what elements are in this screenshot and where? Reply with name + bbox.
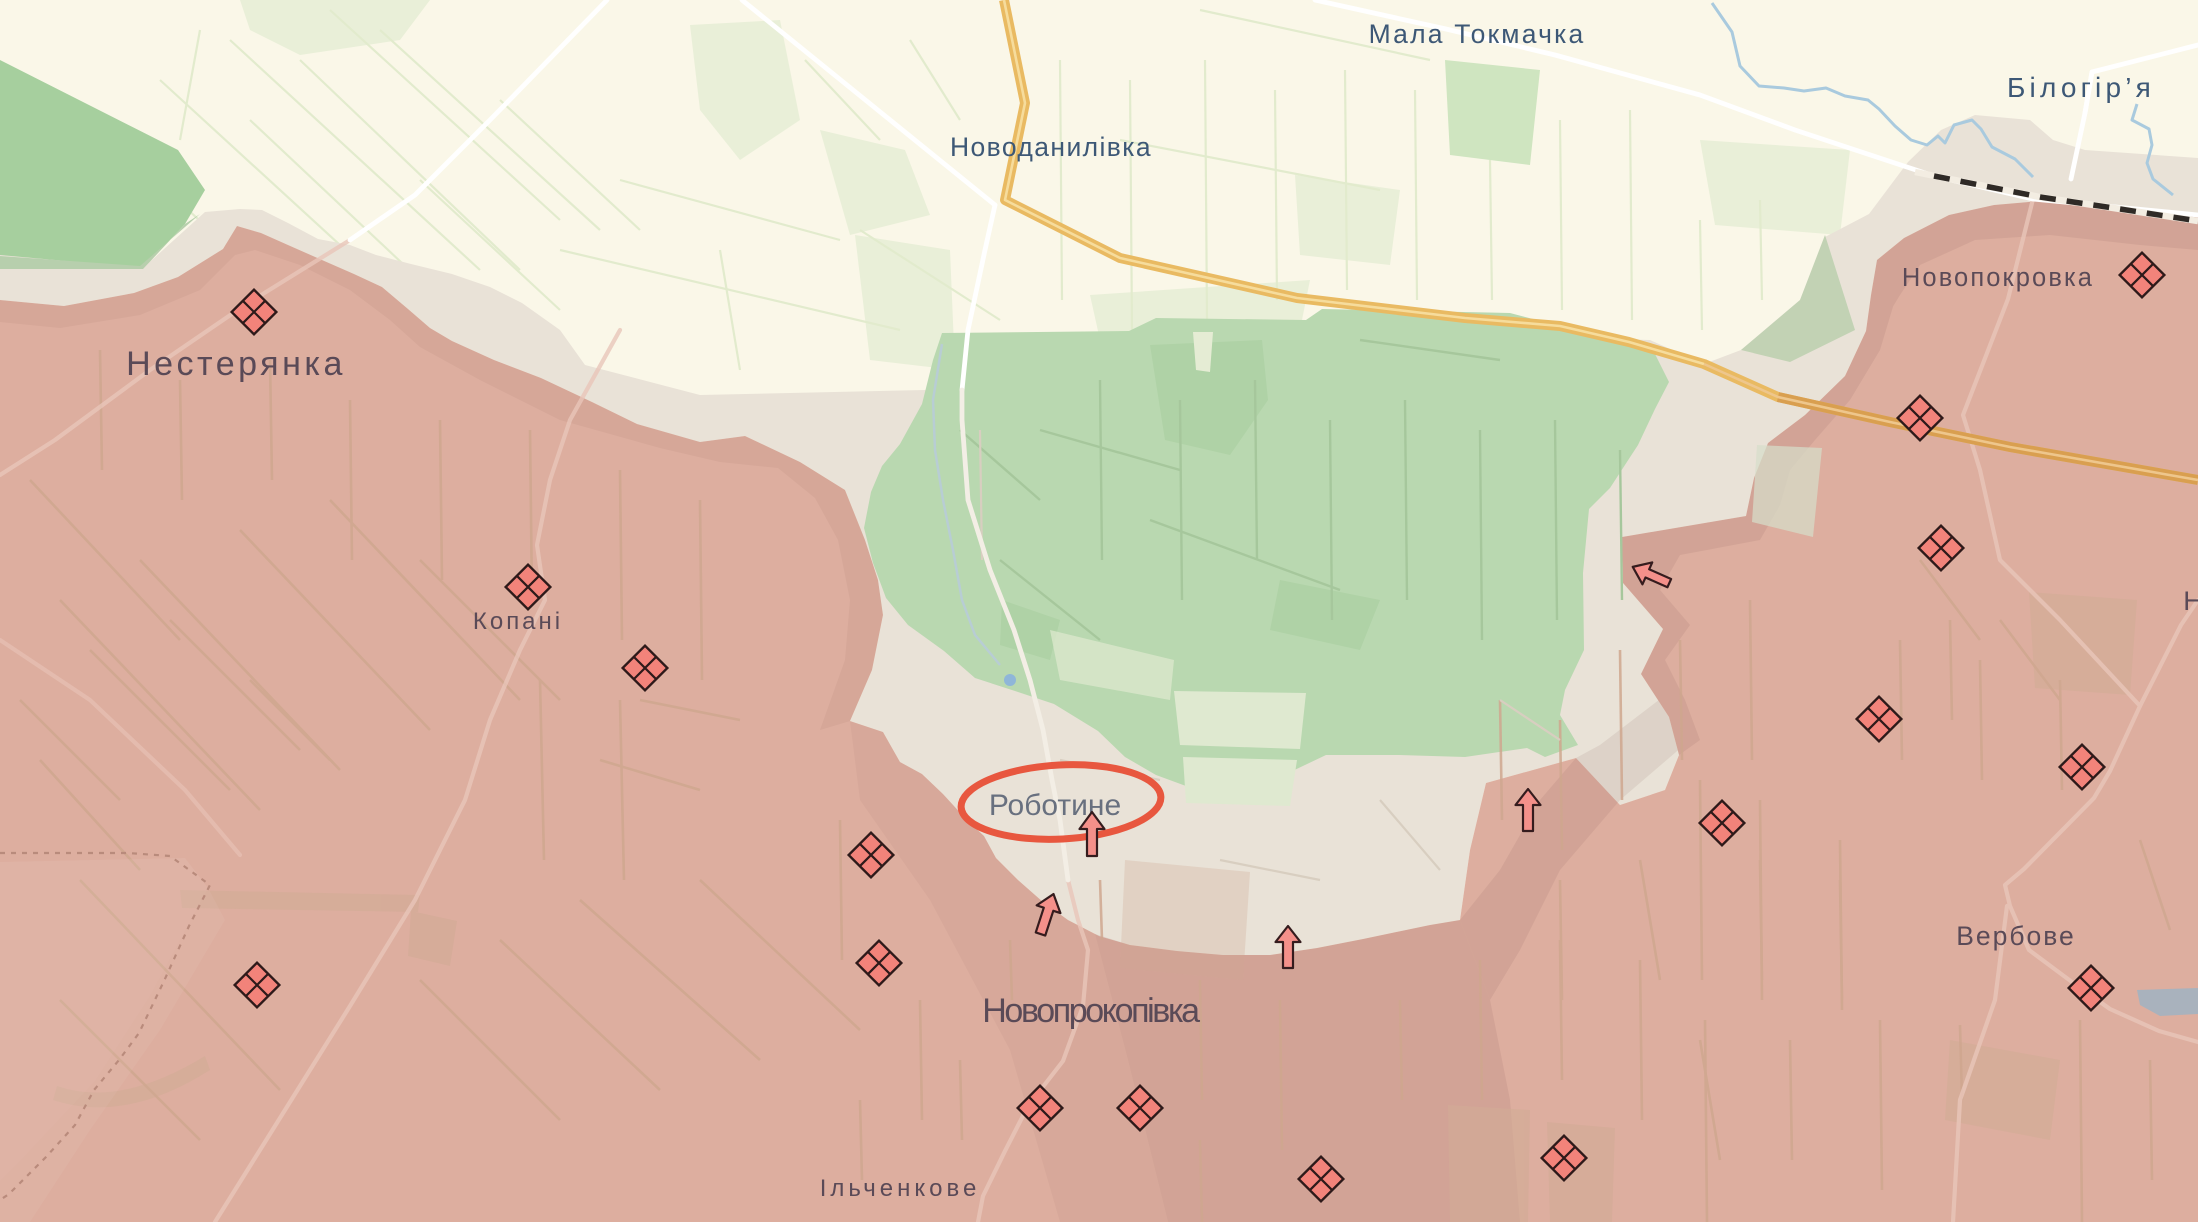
svg-text:Новоданилівка: Новоданилівка: [950, 132, 1152, 162]
svg-text:Вербове: Вербове: [1956, 921, 2076, 951]
svg-text:Нестерянка: Нестерянка: [126, 345, 346, 383]
svg-text:Новопокровка: Новопокровка: [1902, 264, 2094, 292]
svg-text:Білогір’я: Білогір’я: [2007, 72, 2155, 103]
svg-text:Новопрокопівка: Новопрокопівка: [982, 992, 1200, 1030]
svg-text:Копані: Копані: [473, 608, 563, 635]
svg-text:Роботине: Роботине: [989, 789, 1121, 822]
svg-text:Ільченкове: Ільченкове: [820, 1175, 981, 1202]
svg-text:Мала Токмачка: Мала Токмачка: [1369, 19, 1586, 49]
svg-text:Н: Н: [2183, 586, 2198, 616]
